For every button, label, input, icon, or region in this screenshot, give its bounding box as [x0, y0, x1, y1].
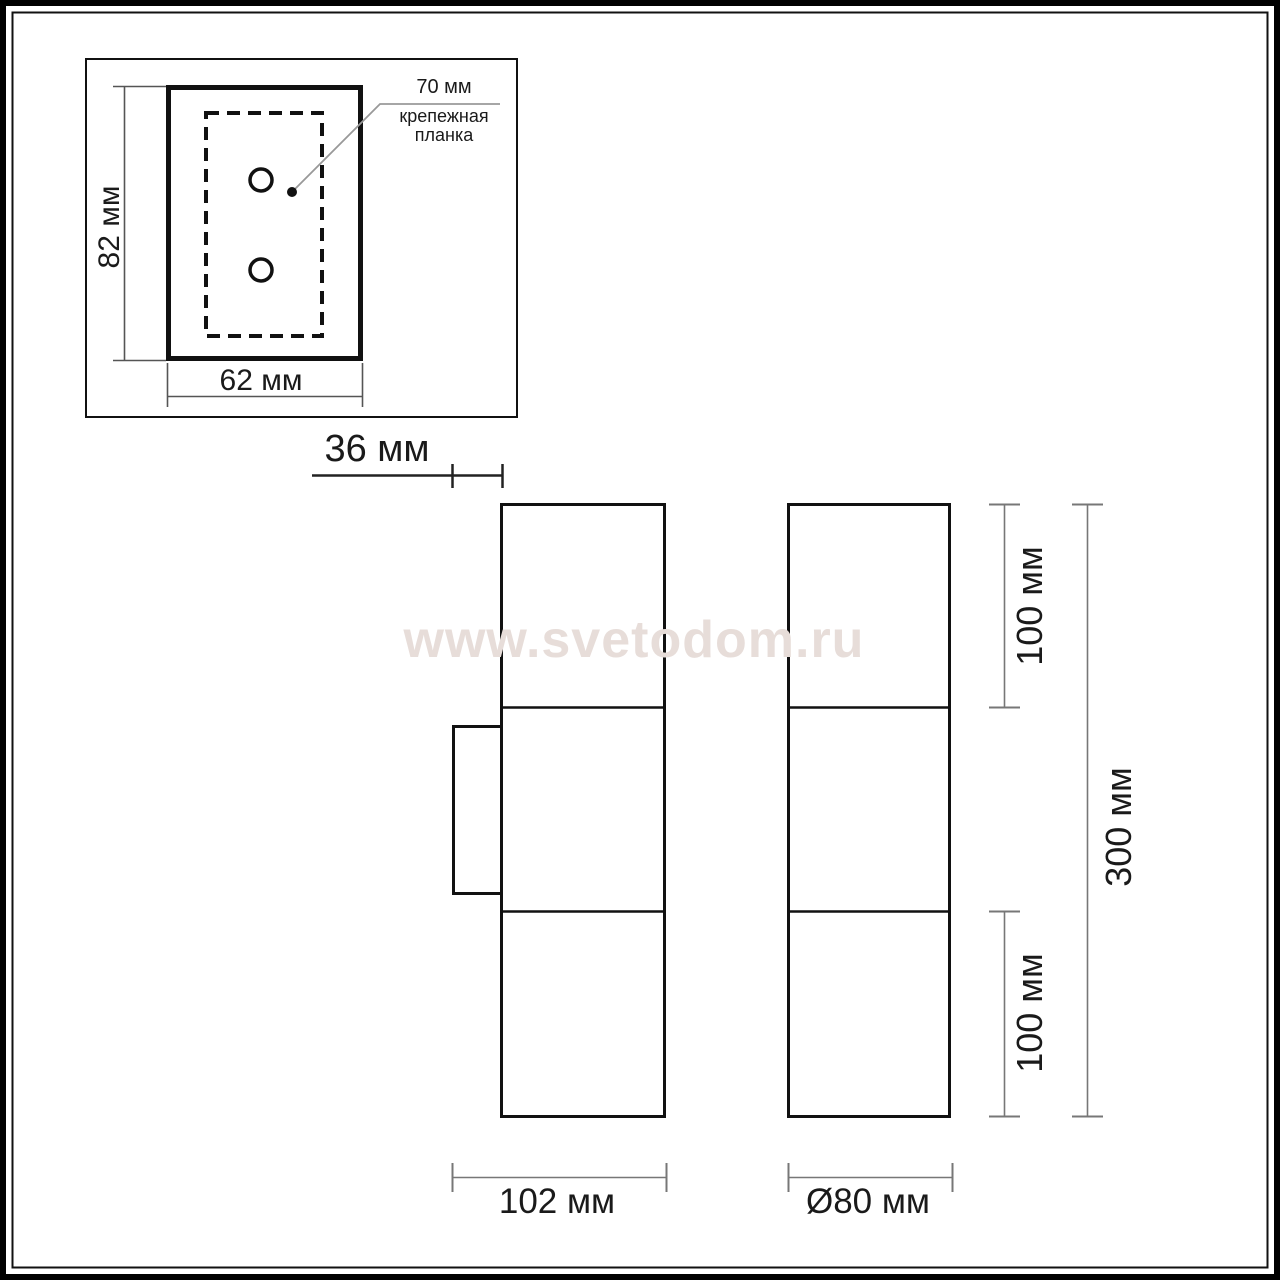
mounting-plate-caption-line2: планка	[374, 126, 514, 145]
backplate-width-label: 62 мм	[191, 364, 331, 398]
backplate-height-label: 82 мм	[94, 172, 126, 282]
screw-hole-bottom	[250, 259, 272, 281]
plate-width-label: 70 мм	[394, 76, 494, 99]
leader-dot	[287, 187, 297, 197]
right-fixture-body	[789, 505, 950, 1117]
screw-hole-top	[250, 169, 272, 191]
total-height-label: 300 мм	[1101, 757, 1137, 897]
wall-bracket	[454, 727, 502, 894]
mounting-plate-caption-line1: крепежная	[374, 107, 514, 126]
bracket-depth-label: 36 мм	[292, 428, 462, 471]
left-fixture-body	[502, 505, 665, 1117]
body-depth-label: 102 мм	[457, 1182, 657, 1222]
backplate-outline	[169, 88, 361, 359]
watermark: www.svetodom.ru	[374, 610, 894, 670]
mounting-plate-caption: крепежная планка	[374, 107, 514, 146]
technical-drawing-page: www.svetodom.ru 70 мм крепежная планка 8…	[0, 0, 1280, 1280]
bottom-section-height-label: 100 мм	[1012, 948, 1048, 1078]
top-section-height-label: 100 мм	[1012, 541, 1048, 671]
diameter-label: Ø80 мм	[768, 1182, 968, 1222]
